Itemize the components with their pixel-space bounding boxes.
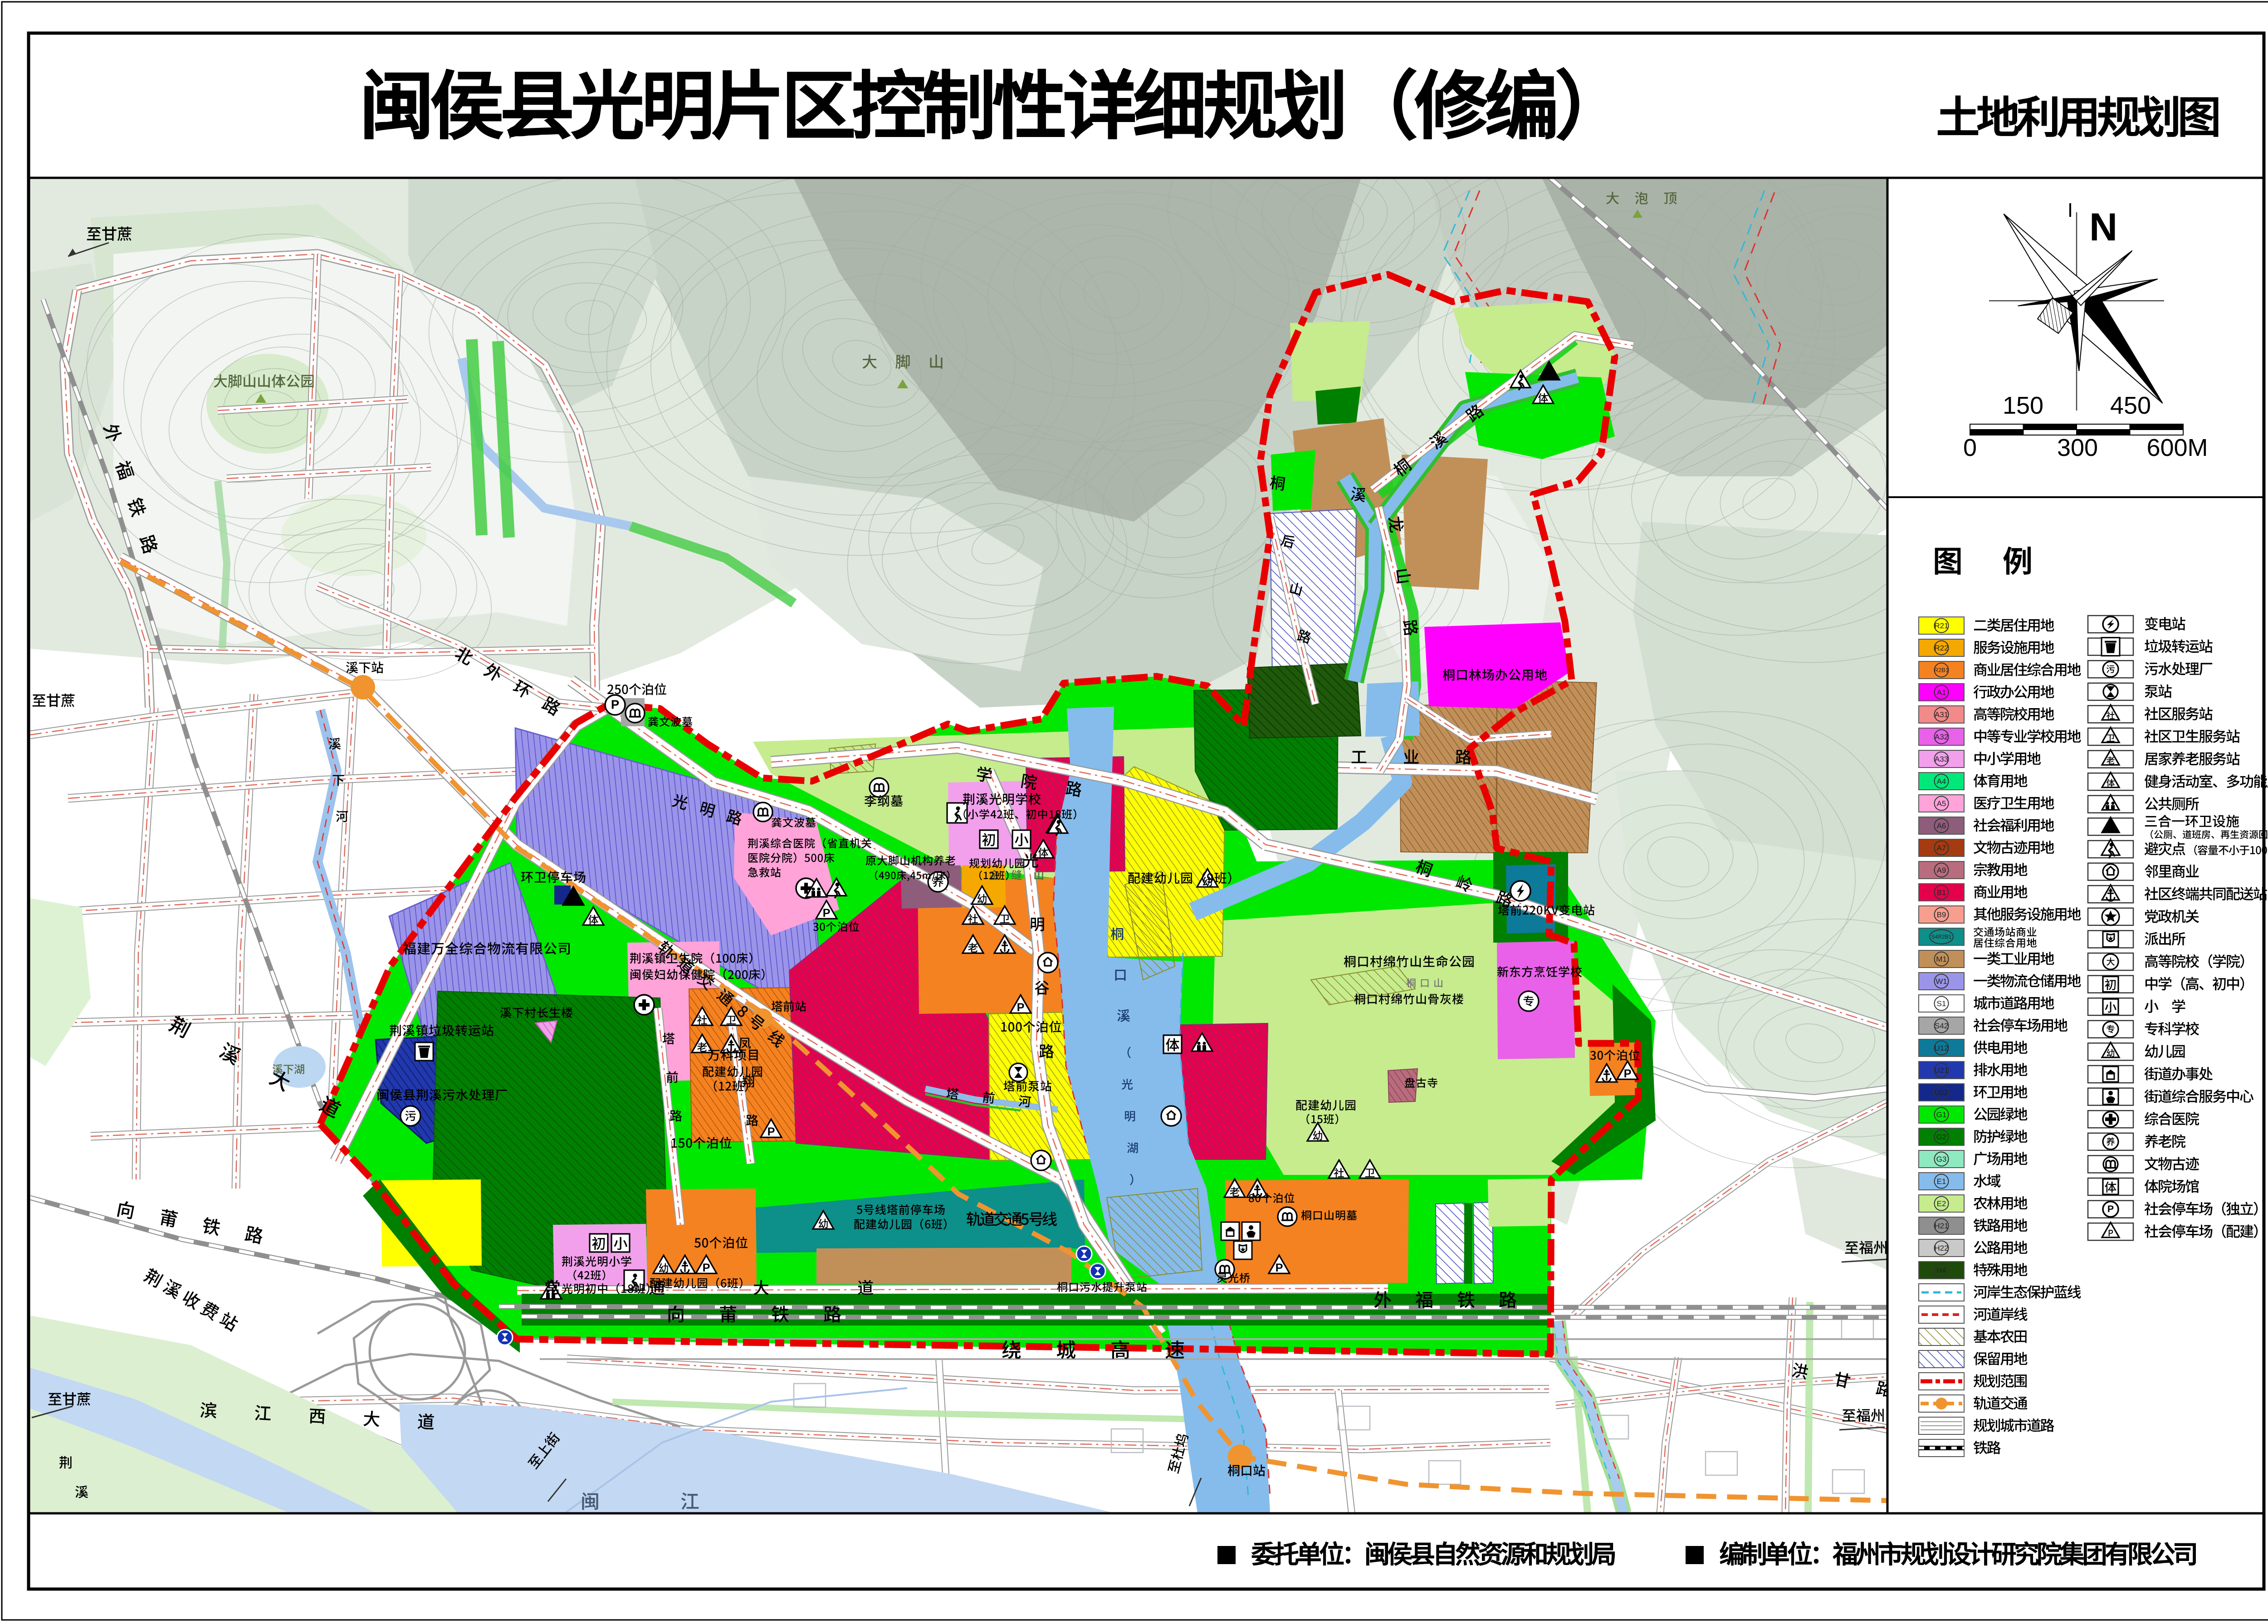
svg-text:N: N [2089, 205, 2117, 249]
svg-text:S1: S1 [1937, 999, 1946, 1008]
svg-text:R2B1: R2B1 [1934, 667, 1949, 674]
svg-text:0: 0 [1963, 434, 1977, 461]
svg-text:A31: A31 [1935, 710, 1948, 719]
svg-text:U22: U22 [1934, 1088, 1948, 1097]
svg-text:P: P [1624, 1067, 1632, 1080]
svg-text:H21: H21 [1934, 1222, 1948, 1230]
svg-text:P: P [767, 1125, 775, 1138]
svg-text:E2: E2 [1937, 1199, 1946, 1208]
svg-text:B1: B1 [1937, 888, 1946, 897]
svg-text:M1: M1 [1936, 955, 1947, 964]
svg-text:H22: H22 [1934, 1244, 1948, 1252]
svg-text:U21: U21 [1934, 1066, 1948, 1075]
svg-text:300: 300 [2057, 434, 2098, 461]
svg-text:A9: A9 [1937, 866, 1946, 875]
svg-text:R22: R22 [1934, 644, 1948, 652]
svg-text:G3: G3 [1936, 1155, 1947, 1164]
svg-text:W1: W1 [1936, 977, 1947, 986]
svg-text:G1: G1 [1936, 1110, 1947, 1119]
svg-text:★: ★ [1240, 1246, 1246, 1254]
svg-text:P: P [823, 907, 831, 920]
svg-text:U12: U12 [1934, 1044, 1948, 1052]
svg-text:A6: A6 [1937, 822, 1946, 830]
svg-text:P: P [703, 1262, 710, 1274]
svg-text:P: P [1017, 1001, 1025, 1014]
svg-text:A1: A1 [1937, 688, 1946, 697]
svg-text:B9: B9 [1937, 910, 1946, 919]
svg-text:A7: A7 [1937, 844, 1946, 852]
svg-text:P: P [1276, 1262, 1283, 1274]
svg-text:A32: A32 [1935, 733, 1948, 741]
svg-text:600M: 600M [2146, 434, 2208, 461]
svg-text:S42: S42 [1935, 1022, 1948, 1030]
svg-text:A5: A5 [1937, 799, 1946, 808]
svg-text:R21: R21 [1934, 621, 1948, 630]
svg-text:H4: H4 [1936, 1266, 1946, 1275]
svg-text:S4R2B1: S4R2B1 [1931, 934, 1952, 940]
svg-text:150: 150 [2003, 392, 2043, 419]
svg-text:A4: A4 [1937, 777, 1946, 786]
svg-text:P: P [611, 697, 619, 711]
svg-text:450: 450 [2110, 392, 2151, 419]
svg-text:G2: G2 [1936, 1133, 1947, 1141]
svg-text:A33: A33 [1935, 755, 1948, 763]
svg-text:E1: E1 [1937, 1177, 1946, 1186]
svg-text:★: ★ [2107, 935, 2114, 943]
svg-text:P: P [2107, 1203, 2114, 1214]
